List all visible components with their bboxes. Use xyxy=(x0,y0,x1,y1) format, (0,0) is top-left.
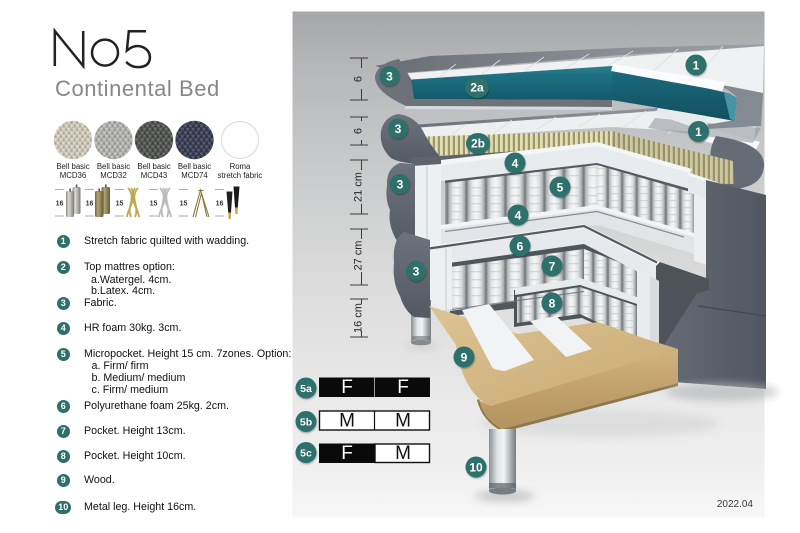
svg-text:9: 9 xyxy=(461,350,468,364)
svg-text:F: F xyxy=(341,443,353,464)
svg-text:8: 8 xyxy=(549,296,556,310)
svg-text:5c: 5c xyxy=(300,447,312,459)
svg-text:1: 1 xyxy=(695,125,702,139)
svg-text:5: 5 xyxy=(557,180,564,194)
svg-text:M: M xyxy=(395,411,411,432)
svg-text:4: 4 xyxy=(515,208,522,222)
svg-text:2b: 2b xyxy=(471,137,485,151)
svg-text:3: 3 xyxy=(413,264,420,278)
svg-text:F: F xyxy=(397,377,409,398)
svg-text:21 cm: 21 cm xyxy=(352,172,364,202)
svg-text:3: 3 xyxy=(397,177,404,191)
svg-text:7: 7 xyxy=(549,259,556,273)
svg-text:27 cm: 27 cm xyxy=(352,241,364,271)
svg-text:M: M xyxy=(339,411,355,432)
svg-text:2022.04: 2022.04 xyxy=(717,499,754,510)
svg-text:5b: 5b xyxy=(300,416,312,428)
svg-text:6: 6 xyxy=(352,76,364,82)
svg-text:2a: 2a xyxy=(470,81,484,95)
svg-text:10: 10 xyxy=(469,460,483,474)
svg-text:3: 3 xyxy=(395,122,402,136)
svg-text:16 cm: 16 cm xyxy=(352,303,364,333)
svg-text:4: 4 xyxy=(512,156,519,170)
svg-text:1: 1 xyxy=(693,58,700,72)
svg-text:M: M xyxy=(395,443,411,464)
svg-text:6: 6 xyxy=(517,239,524,253)
svg-text:6: 6 xyxy=(352,128,364,134)
svg-text:5a: 5a xyxy=(300,383,312,395)
svg-text:3: 3 xyxy=(386,69,393,83)
svg-text:F: F xyxy=(341,377,353,398)
